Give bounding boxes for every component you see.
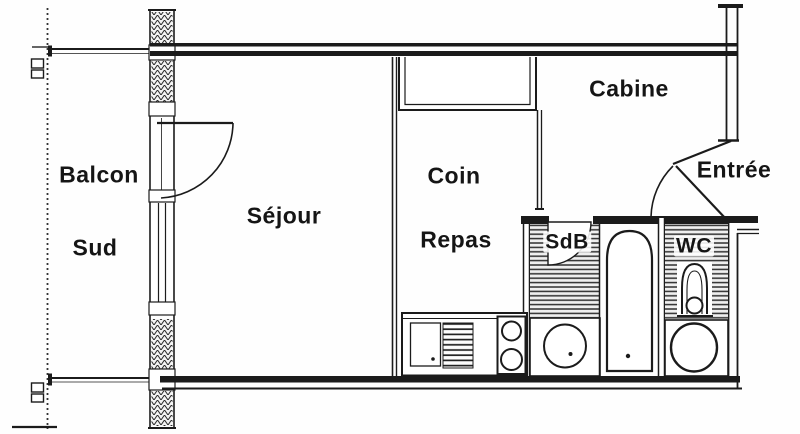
room-label-wc: WC <box>674 236 714 257</box>
entrance-door-swing <box>651 166 673 217</box>
right-wall <box>727 216 758 223</box>
wall-hatch <box>152 12 173 44</box>
sdb-top-wall <box>521 216 549 224</box>
room-label-entree: Entrée <box>697 159 772 182</box>
balcony-door <box>157 123 233 198</box>
toilet-flush <box>687 298 703 314</box>
room-label-repas: Repas <box>420 229 492 252</box>
balcony-rail <box>12 8 149 429</box>
wall-hatch <box>152 391 173 426</box>
floor-plan-drawing <box>0 0 800 434</box>
bathtub <box>607 231 652 371</box>
wall-hatch <box>152 61 173 102</box>
room-label-sdb: SdB <box>543 232 591 253</box>
room-label-coin: Coin <box>427 165 480 188</box>
bottom-wall <box>160 376 740 383</box>
wall-hatch <box>152 319 173 369</box>
bathroom-washbasin <box>544 325 586 368</box>
room-label-sejour: Séjour <box>247 205 322 228</box>
room-label-cabine: Cabine <box>589 78 669 101</box>
kitchenette <box>402 313 527 376</box>
cooktop-burner <box>501 349 522 370</box>
room-label-sud: Sud <box>73 237 118 260</box>
room-label-balcon: Balcon <box>59 164 139 187</box>
cooktop-burner <box>502 322 521 341</box>
bathtub-drain <box>626 354 630 358</box>
sink-drainer <box>443 323 473 368</box>
closet <box>399 57 536 110</box>
top-wall <box>150 51 738 56</box>
right-wall <box>718 4 743 8</box>
wc-washbasin <box>671 324 717 372</box>
balcony-door-swing <box>161 123 233 198</box>
floor-plan: Balcon Sud Séjour Coin Repas Cabine Entr… <box>0 0 800 434</box>
kitchen-sink <box>411 323 441 366</box>
left-exterior-wall <box>148 10 176 428</box>
washbasin-drain <box>569 352 573 356</box>
sink-drain <box>431 357 435 361</box>
top-wall <box>150 43 738 47</box>
